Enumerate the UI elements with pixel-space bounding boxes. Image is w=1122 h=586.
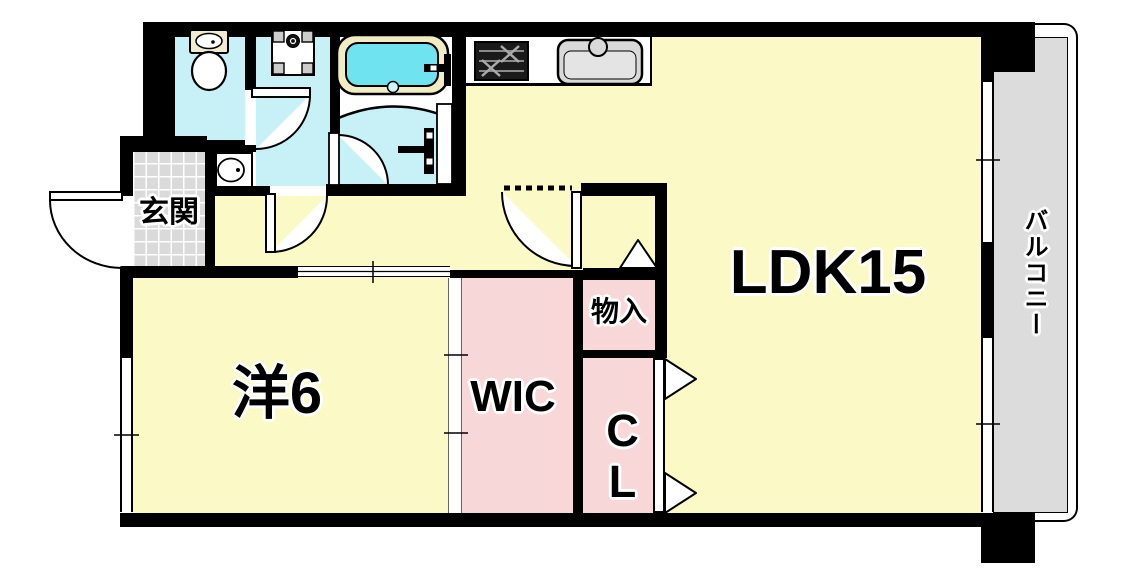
wall-bottom [120,513,1035,527]
room-label-wic: WIC [452,374,574,420]
entrance-door-opening [120,196,133,268]
room-label-ldk: LDK15 [698,240,958,305]
bathtub-icon [337,35,451,94]
bath-curved-edge [336,107,452,120]
closet-door-strip [653,358,665,513]
wall-toilet-bottom [175,140,256,152]
floorplan-canvas: LDK15 洋6 WIC CL 物入 玄関 バルコニー [0,0,1122,586]
wall-wic-top [450,270,573,278]
toilet-door-opening [245,90,256,145]
ldk-window-upper [981,82,994,242]
hallway-floor [207,190,457,278]
toilet-room-floor [175,34,245,140]
wall-storage-right [655,183,667,358]
room-label-balcony: バルコニー [1008,200,1046,345]
entrance-door [50,192,122,268]
wall-sanitary-left [143,22,175,152]
wall-washroom-bath [330,22,340,133]
western-room-window [120,358,133,512]
vanity-counter [398,104,452,184]
powder-room-floor [340,107,450,184]
room-label-storage: 物入 [583,297,655,326]
hand-washbasin-box [215,152,253,188]
wall-hall-north-mid [326,184,466,196]
wall-left-mid [120,268,133,358]
washroom-door-opening [270,186,326,196]
wall-top [143,22,1035,37]
wall-toilet-washroom [245,22,256,90]
ldk-window-lower [981,338,994,512]
wall-entrance-right [205,152,215,268]
wall-wic-closet [573,270,583,515]
kitchen-counter [466,36,652,86]
washroom-floor [256,34,330,186]
room-label-closet: CL [596,396,646,516]
room-label-entrance: 玄関 [133,197,205,229]
wall-hall-south [120,266,298,278]
powder-door-opening [330,133,340,185]
wall-sanitary-right [452,22,466,196]
western-room-sliding-door [298,266,450,277]
wall-storage-top [583,268,655,280]
wall-hall-north-left [215,186,270,196]
wall-right-upper [981,37,994,82]
wall-right-mid [981,242,994,338]
room-label-western: 洋6 [157,364,397,425]
wall-storage-bottom [583,350,665,358]
